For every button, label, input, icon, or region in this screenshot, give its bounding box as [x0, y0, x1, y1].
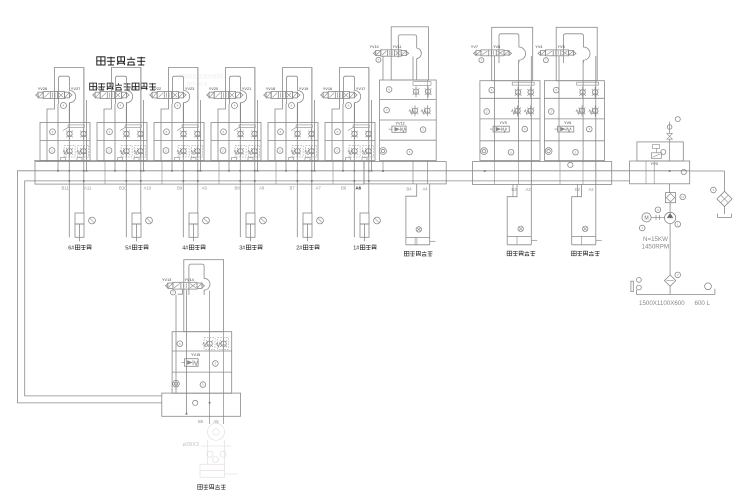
- svg-text:YV17: YV17: [356, 86, 366, 91]
- svg-text:YV20: YV20: [209, 86, 219, 91]
- svg-text:3#: 3#: [239, 246, 245, 252]
- svg-text:YV13: YV13: [162, 278, 171, 282]
- svg-text:YV19: YV19: [299, 86, 309, 91]
- svg-text:-8: -8: [195, 95, 199, 100]
- svg-text:YV6: YV6: [564, 121, 571, 125]
- svg-text:N=15KW: N=15KW: [643, 236, 668, 243]
- svg-text:YV16: YV16: [323, 86, 333, 91]
- svg-text:M: M: [644, 215, 648, 221]
- svg-text:YV5: YV5: [558, 45, 565, 49]
- svg-text:YV7: YV7: [471, 45, 478, 49]
- svg-text:5#: 5#: [125, 246, 131, 252]
- svg-text:B8: B8: [235, 186, 241, 191]
- svg-text:YV23: YV23: [185, 86, 195, 91]
- svg-text:YV18: YV18: [266, 86, 276, 91]
- svg-text:YV14: YV14: [185, 278, 194, 282]
- svg-text:4#: 4#: [182, 246, 188, 252]
- svg-text:1500X1100X650: 1500X1100X650: [179, 75, 224, 81]
- svg-text:A10: A10: [144, 186, 152, 191]
- svg-text:YV15: YV15: [191, 353, 200, 357]
- svg-text:2#: 2#: [296, 246, 302, 252]
- svg-text:YV12: YV12: [396, 122, 405, 126]
- svg-text:YV8: YV8: [493, 45, 500, 49]
- svg-text:1500X1100X600: 1500X1100X600: [639, 300, 685, 307]
- svg-text:YV27: YV27: [71, 86, 81, 91]
- svg-text:ø28X3: ø28X3: [183, 442, 199, 448]
- svg-text:YV9: YV9: [500, 121, 507, 125]
- svg-text:A3: A3: [526, 187, 532, 192]
- svg-text:600 L: 600 L: [695, 300, 711, 307]
- svg-text:B9: B9: [177, 186, 183, 191]
- svg-text:YV24: YV24: [95, 86, 105, 91]
- svg-text:YV11: YV11: [393, 45, 402, 49]
- svg-text:A11: A11: [84, 186, 92, 191]
- svg-text:B3: B3: [512, 187, 518, 192]
- svg-text:B6: B6: [341, 186, 347, 191]
- svg-text:A6: A6: [356, 186, 362, 191]
- svg-text:YV10: YV10: [370, 45, 379, 49]
- svg-text:YV26: YV26: [38, 86, 48, 91]
- svg-text:A9: A9: [202, 186, 208, 191]
- svg-text:YV22: YV22: [152, 86, 162, 91]
- svg-text:1#: 1#: [353, 246, 359, 252]
- svg-text:B4: B4: [407, 187, 413, 192]
- svg-text:B10: B10: [119, 186, 127, 191]
- svg-text:A4: A4: [423, 187, 429, 192]
- svg-text:B2: B2: [575, 187, 581, 192]
- svg-text:1450RPM: 1450RPM: [642, 243, 670, 250]
- svg-text:A8: A8: [259, 186, 265, 191]
- svg-text:YV21: YV21: [242, 86, 252, 91]
- svg-text:6#: 6#: [68, 246, 74, 252]
- svg-text:11: 11: [681, 195, 684, 199]
- svg-text:B7: B7: [290, 186, 296, 191]
- svg-text:YV0: YV0: [651, 161, 659, 166]
- svg-text:B11: B11: [62, 186, 70, 191]
- svg-text:YV4: YV4: [535, 45, 542, 49]
- svg-text:A7: A7: [316, 186, 322, 191]
- svg-text:A2: A2: [589, 187, 595, 192]
- svg-text:B5: B5: [198, 419, 204, 424]
- svg-text:YV25: YV25: [128, 86, 138, 91]
